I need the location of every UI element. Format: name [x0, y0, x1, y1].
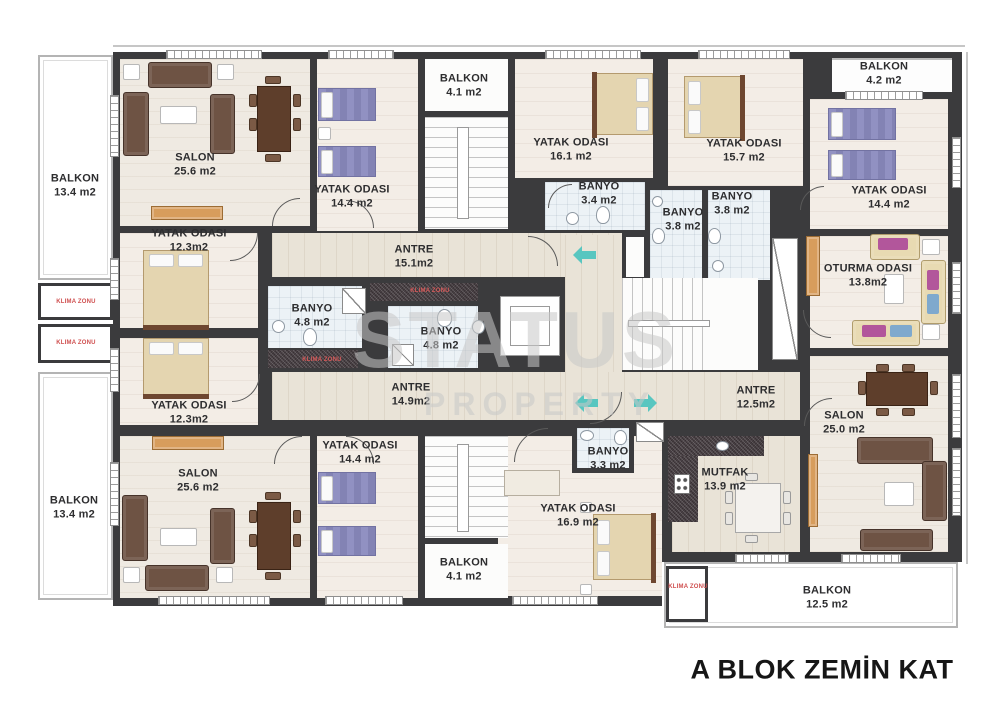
window: [952, 374, 961, 438]
room-label-banyo-4-8-b: BANYO4.8 m2: [421, 325, 462, 354]
plan-title: A BLOK ZEMİN KAT: [691, 655, 954, 686]
sink-icon: [472, 320, 485, 334]
room-label-balkon-bottom-right: BALKON12.5 m2: [803, 584, 851, 613]
window: [328, 50, 394, 59]
single-bed: [318, 88, 376, 121]
room-label-yatak-12-3-upper: YATAK ODASI12.3m2: [151, 227, 226, 256]
shower-4-8-b: [392, 344, 414, 366]
side-table: [216, 567, 233, 583]
window: [166, 50, 262, 59]
klima-zonu-label: KLIMA ZONU: [302, 357, 341, 363]
window: [545, 50, 641, 59]
chair: [293, 510, 301, 523]
sofa: [122, 495, 148, 561]
room-label-salon-bottom-left: SALON25.6 m2: [177, 467, 219, 496]
room-label-balkon-left-top: BALKON13.4 m2: [51, 172, 99, 201]
toilet-icon: [303, 328, 317, 346]
direction-arrow-left-icon: [582, 251, 596, 259]
direction-arrow-left-icon: [584, 399, 598, 407]
sink-icon: [712, 260, 724, 272]
window: [841, 554, 901, 563]
tv-sideboard: [151, 206, 223, 220]
room-label-salon-top-left: SALON25.6 m2: [174, 151, 216, 180]
cabinet: [808, 454, 818, 527]
direction-arrow-right-icon: [634, 399, 648, 407]
window: [845, 91, 923, 100]
balcony-left-top: [38, 55, 113, 280]
sofa: [145, 565, 209, 591]
chair: [783, 512, 791, 525]
double-bed: [684, 76, 744, 138]
room-label-yatak-16-9: YATAK ODASI16.9 m2: [540, 502, 615, 531]
stairs-bottom-rail: [457, 444, 469, 532]
klima-zonu-label: KLIMA ZONU: [668, 584, 707, 590]
sofa: [857, 437, 933, 464]
stairs-central-rail: [628, 320, 710, 327]
double-bed: [143, 250, 209, 328]
side-table: [123, 64, 140, 80]
room-label-yatak-top-left: YATAK ODASI14.4 m2: [314, 183, 389, 212]
single-bed: [318, 526, 376, 556]
chair: [876, 364, 889, 372]
floor-plan: BALKON13.4 m2 SALON25.6 m2 YATAK ODASI14…: [0, 0, 1000, 707]
room-label-banyo-3-3: BANYO3.3 m2: [588, 445, 629, 474]
room-label-balkon-top-mid: BALKON4.1 m2: [440, 72, 488, 101]
chair: [745, 535, 758, 543]
hall-closet: [626, 237, 644, 277]
window: [110, 258, 119, 300]
window: [110, 348, 119, 392]
room-label-yatak-bottom-mid: YATAK ODASI14.4 m2: [322, 439, 397, 468]
toilet-icon: [708, 228, 721, 244]
room-label-mutfak: MUTFAK13.9 m2: [701, 466, 748, 495]
sofa: [123, 92, 149, 156]
side-table: [922, 324, 940, 340]
sofa: [148, 62, 212, 88]
sofa: [210, 94, 235, 154]
chair: [249, 534, 257, 547]
double-bed: [593, 73, 653, 135]
chair: [858, 381, 866, 395]
outer-line-top: [113, 45, 965, 47]
single-bed: [318, 146, 376, 177]
chair: [902, 408, 915, 416]
room-label-antre-12-5: ANTRE12.5m2: [737, 384, 776, 413]
window: [698, 50, 790, 59]
window: [952, 137, 961, 188]
dining-table: [257, 86, 291, 152]
chair: [293, 94, 301, 107]
side-table: [123, 567, 140, 583]
outer-line-right: [966, 52, 968, 564]
sofa-cushion: [927, 270, 939, 290]
duct-shaft: [772, 238, 798, 360]
chair: [902, 364, 915, 372]
chair: [249, 510, 257, 523]
room-label-oturma-odasi: OTURMA ODASI13.8m2: [824, 262, 912, 291]
chair: [293, 534, 301, 547]
window: [158, 596, 270, 605]
window: [110, 95, 119, 157]
chair: [265, 154, 281, 162]
kitchen-sink-icon: [716, 441, 729, 451]
chair: [265, 572, 281, 580]
chair: [249, 118, 257, 131]
balcony-left-bottom: [38, 372, 113, 600]
klima-box-3: [666, 566, 708, 622]
side-table: [922, 239, 940, 255]
chair: [725, 512, 733, 525]
sink-icon: [652, 196, 663, 207]
room-label-yatak-16-1: YATAK ODASI16.1 m2: [533, 136, 608, 165]
stove-icon: [674, 474, 690, 494]
single-bed: [318, 472, 376, 504]
double-bed: [143, 338, 209, 397]
klima-zonu-label: KLIMA ZONU: [56, 299, 95, 305]
window: [735, 554, 789, 563]
sink-icon: [580, 430, 594, 441]
klima-zonu-label: KLIMA ZONU: [56, 340, 95, 346]
toilet-icon: [614, 430, 627, 445]
elevator-cab: [510, 306, 550, 346]
coffee-table: [884, 482, 914, 506]
room-label-antre-15-1: ANTRE15.1m2: [395, 243, 434, 272]
room-label-yatak-12-3-lower: YATAK ODASI12.3m2: [151, 399, 226, 428]
chair: [293, 118, 301, 131]
room-label-salon-right: SALON25.0 m2: [823, 409, 865, 438]
room-label-balkon-bottom-mid: BALKON4.1 m2: [440, 556, 488, 585]
sink-icon: [566, 212, 579, 225]
room-label-balkon-top-right: BALKON4.2 m2: [860, 60, 908, 89]
dining-table: [866, 372, 928, 406]
sofa: [922, 461, 947, 521]
chair: [265, 492, 281, 500]
single-bed: [828, 108, 896, 140]
tv-sideboard: [152, 436, 224, 450]
window: [952, 262, 961, 314]
sofa: [210, 508, 235, 564]
nightstand: [580, 584, 592, 595]
chair: [249, 94, 257, 107]
sofa-cushion: [890, 325, 912, 337]
shower-3-3: [636, 422, 664, 442]
sofa-cushion: [862, 325, 886, 337]
wardrobe: [504, 470, 560, 496]
room-label-yatak-15-7: YATAK ODASI15.7 m2: [706, 137, 781, 166]
room-label-banyo-4-8-a: BANYO4.8 m2: [292, 302, 333, 331]
window: [512, 596, 598, 605]
sofa: [860, 529, 933, 551]
nightstand: [318, 127, 331, 140]
chair: [930, 381, 938, 395]
chair: [265, 76, 281, 84]
stairs-top-rail: [457, 127, 469, 219]
room-label-antre-14-9: ANTRE14.9m2: [392, 381, 431, 410]
room-label-banyo-3-8-right: BANYO3.8 m2: [712, 190, 753, 219]
room-label-banyo-3-4: BANYO3.4 m2: [579, 180, 620, 209]
toilet-icon: [596, 206, 610, 224]
sink-icon: [272, 320, 285, 333]
coffee-table: [160, 106, 197, 124]
sofa-cushion: [878, 238, 908, 250]
chair: [876, 408, 889, 416]
window: [325, 596, 403, 605]
stairs-central-landing: [712, 278, 758, 370]
cabinet: [806, 236, 820, 296]
window: [110, 462, 119, 526]
sofa-cushion: [927, 294, 939, 314]
coffee-table: [160, 528, 197, 546]
room-label-yatak-right: YATAK ODASI14.4 m2: [851, 184, 926, 213]
shower-4-8-a: [342, 288, 366, 314]
dining-table: [257, 502, 291, 570]
room-label-banyo-3-8-left: BANYO3.8 m2: [663, 206, 704, 235]
room-label-balkon-left-bottom: BALKON13.4 m2: [50, 494, 98, 523]
side-table: [217, 64, 234, 80]
chair: [783, 491, 791, 504]
klima-zonu-label: KLIMA ZONU: [410, 288, 449, 294]
single-bed: [828, 150, 896, 180]
window: [952, 448, 961, 516]
